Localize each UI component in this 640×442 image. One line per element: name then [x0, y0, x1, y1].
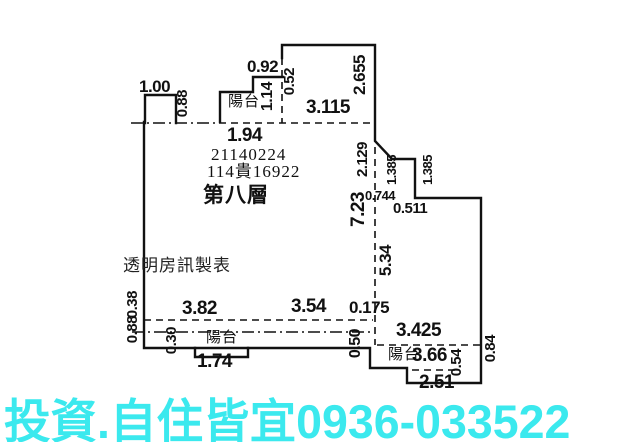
dim-2-129: 2.129: [355, 142, 370, 177]
floorplan-lines: [0, 0, 640, 442]
balcony-label-bottom-left: 陽台: [206, 331, 238, 346]
case-code: 114貴16922: [207, 163, 300, 180]
watermark-text: 透明房訊製表: [123, 257, 231, 274]
dim-0-88-bottom: 0.88: [125, 316, 140, 343]
dim-1-14: 1.14: [260, 82, 276, 111]
dim-7-23: 7.23: [349, 192, 368, 227]
dim-0-175: 0.175: [349, 299, 389, 316]
dim-0-84: 0.84: [483, 335, 498, 362]
dim-0-92: 0.92: [247, 58, 278, 75]
dim-3-115: 3.115: [306, 98, 350, 117]
dim-0-38: 0.38: [125, 291, 140, 318]
dim-5-34: 5.34: [377, 245, 394, 276]
dim-0-744: 0.744: [365, 189, 395, 202]
dim-3-54: 3.54: [291, 297, 326, 316]
dim-1-74: 1.74: [197, 352, 232, 371]
dim-0-30: 0.30: [164, 327, 179, 354]
case-number: 21140224: [211, 146, 286, 163]
dim-1-385-left: 1.385: [385, 155, 398, 185]
dim-0-54: 0.54: [449, 349, 464, 376]
balcony-label-top: 陽台: [228, 95, 260, 110]
floorplan-canvas: 1.00 0.92 3.115 1.94 0.744 0.511 3.82 3.…: [0, 0, 640, 442]
balcony-label-bottom-right: 陽台: [388, 348, 420, 363]
wall-top-left-box: [145, 95, 176, 123]
dim-1-00: 1.00: [139, 78, 170, 95]
floor-title: 第八層: [203, 185, 269, 206]
dim-0-511: 0.511: [393, 201, 427, 216]
dim-2-655: 2.655: [351, 55, 368, 95]
dim-3-82: 3.82: [182, 299, 217, 318]
dim-0-50: 0.50: [348, 329, 364, 358]
ad-text: 投資.自住皆宜0936-033522: [4, 383, 634, 442]
dim-0-88-top: 0.88: [175, 90, 190, 117]
dim-0-52: 0.52: [282, 68, 297, 95]
dim-3-425: 3.425: [396, 321, 441, 340]
dim-1-94: 1.94: [227, 126, 262, 145]
dim-1-385-right: 1.385: [421, 155, 434, 185]
